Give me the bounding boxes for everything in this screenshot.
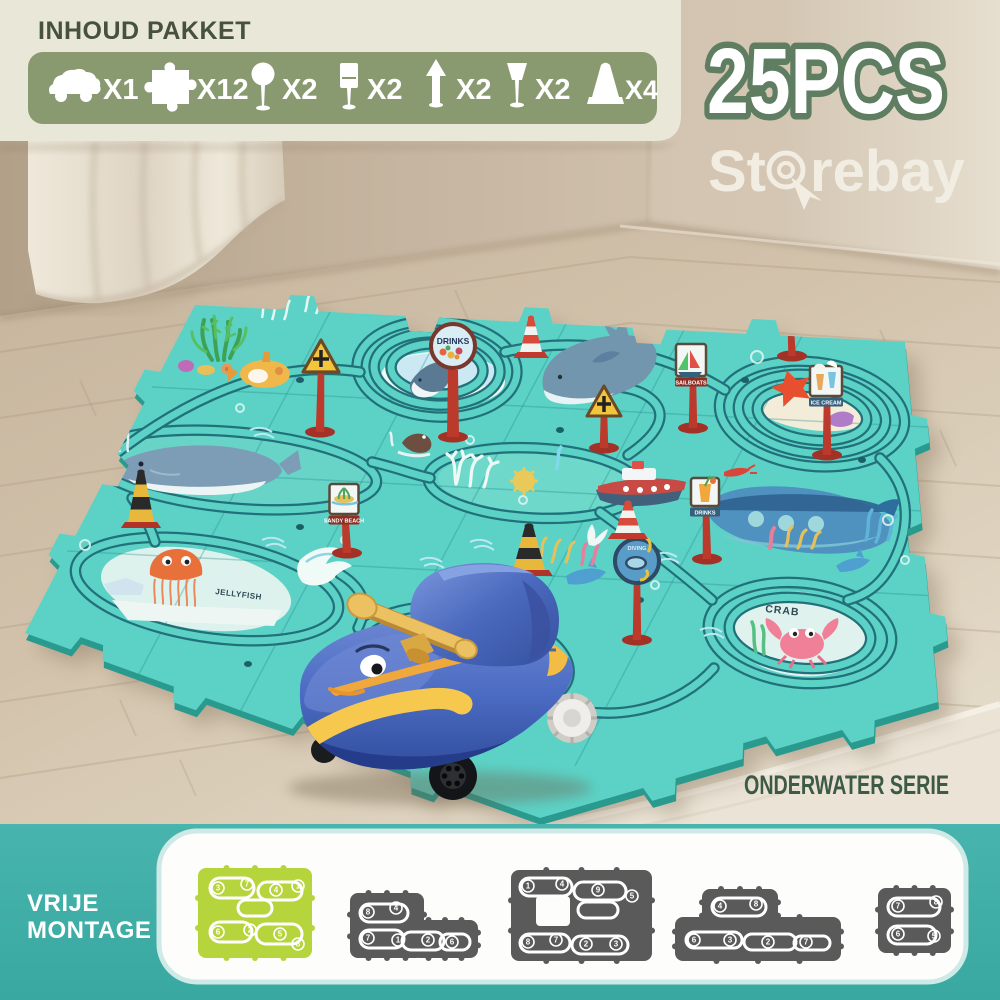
svg-text:5: 5 — [932, 932, 937, 941]
svg-text:6: 6 — [450, 938, 455, 947]
svg-text:X4: X4 — [625, 75, 658, 105]
svg-text:1: 1 — [296, 882, 301, 891]
svg-text:ONDERWATER SERIE: ONDERWATER SERIE — [744, 770, 949, 800]
svg-text:4: 4 — [560, 880, 565, 889]
svg-text:3: 3 — [728, 936, 733, 945]
svg-text:6: 6 — [216, 928, 221, 937]
svg-text:2: 2 — [584, 940, 589, 949]
svg-text:3: 3 — [614, 940, 619, 949]
svg-text:3: 3 — [216, 884, 221, 893]
svg-text:DRINKS: DRINKS — [437, 336, 470, 346]
svg-text:MONTAGE: MONTAGE — [27, 917, 151, 944]
svg-text:VRIJE: VRIJE — [27, 890, 99, 917]
svg-text:SANDY BEACH: SANDY BEACH — [324, 519, 364, 525]
svg-text:SAILBOATS: SAILBOATS — [675, 381, 707, 387]
svg-text:8: 8 — [526, 938, 531, 947]
svg-text:X2: X2 — [367, 74, 402, 106]
svg-text:8: 8 — [366, 908, 371, 917]
svg-text:INHOUD PAKKET: INHOUD PAKKET — [38, 17, 251, 45]
svg-text:2: 2 — [766, 938, 771, 947]
svg-text:4: 4 — [274, 886, 279, 895]
svg-text:X2: X2 — [535, 74, 570, 106]
svg-text:2: 2 — [248, 926, 253, 935]
svg-text:5: 5 — [630, 892, 635, 901]
svg-text:2: 2 — [426, 936, 431, 945]
svg-text:X12: X12 — [197, 74, 249, 106]
svg-text:9: 9 — [596, 886, 601, 895]
svg-text:4: 4 — [394, 904, 399, 913]
svg-text:8: 8 — [296, 940, 301, 949]
svg-text:St: St — [708, 139, 766, 204]
svg-text:4: 4 — [718, 902, 723, 911]
svg-text:DIVING: DIVING — [628, 546, 647, 552]
svg-text:1: 1 — [526, 882, 531, 891]
svg-text:6: 6 — [896, 930, 901, 939]
svg-text:25PCS: 25PCS — [707, 29, 945, 133]
svg-text:X2: X2 — [456, 74, 491, 106]
svg-text:ICE CREAM: ICE CREAM — [811, 401, 842, 407]
svg-text:8: 8 — [754, 900, 759, 909]
svg-text:rebay: rebay — [810, 139, 965, 204]
svg-text:7: 7 — [245, 880, 250, 889]
svg-text:1: 1 — [396, 936, 401, 945]
svg-text:DRINKS: DRINKS — [694, 511, 715, 517]
svg-text:7: 7 — [804, 938, 809, 947]
svg-text:X1: X1 — [103, 74, 138, 106]
svg-text:7: 7 — [366, 934, 371, 943]
svg-text:8: 8 — [934, 898, 939, 907]
svg-text:6: 6 — [692, 936, 697, 945]
svg-text:7: 7 — [554, 936, 559, 945]
svg-text:X2: X2 — [282, 74, 317, 106]
svg-text:7: 7 — [896, 902, 901, 911]
svg-text:5: 5 — [278, 930, 283, 939]
